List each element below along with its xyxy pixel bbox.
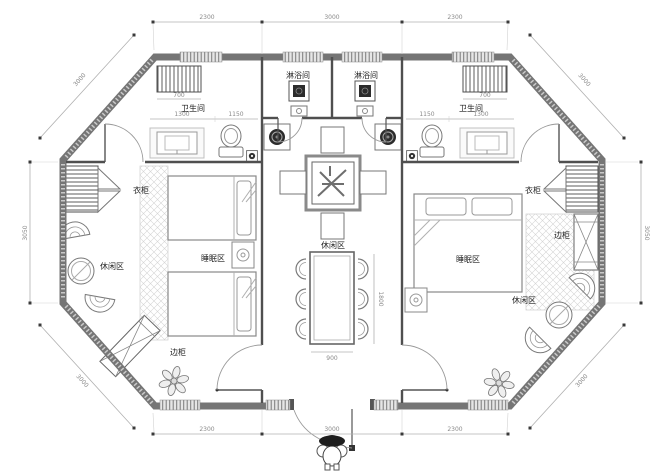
floor-plan: 2300 3000 2300 2300 3000 2300 3050 3050 … [0,0,651,473]
dim-diag-bl: 3000 [74,373,90,389]
basin-left [264,124,290,150]
wardrobe-left [66,166,120,212]
label-sleep-right: 睡眠区 [456,255,480,264]
dim-top-right: 2300 [447,14,462,21]
dim-bottom-right: 2300 [447,426,462,433]
dim-bottom-mid: 3000 [324,426,339,433]
bed-right [414,194,522,292]
dim-side-left: 3050 [22,225,29,240]
dim-diag-tl: 3000 [72,72,88,88]
tea-table [280,127,386,239]
dim-radiator-right: 700 [479,92,491,99]
dim-radiator-left: 700 [173,92,185,99]
floor-plan-drawing: 2300 3000 2300 2300 3000 2300 3050 3050 … [0,0,651,473]
shower-right-fixtures [355,81,375,116]
person-figure [317,435,347,470]
stool-right [360,171,386,194]
bed-left-2 [168,272,256,336]
label-shower-left: 淋浴间 [286,70,310,80]
dim-diag-br: 3000 [574,373,590,389]
plant-left [156,363,193,400]
label-wardrobe-left: 衣柜 [133,185,149,195]
side-cabinet-right [574,214,598,270]
dim-top-mid: 3000 [324,14,339,21]
nightstand-right [405,288,427,312]
label-wardrobe-right: 衣柜 [525,185,541,195]
stool-left [280,171,306,194]
label-cabinet-right: 边柜 [554,230,570,240]
label-lounge-left: 休闲区 [100,261,124,271]
label-sleep-left: 睡眠区 [201,254,225,263]
label-bathroom-left: 卫生间 [181,103,205,113]
dim-dining-h: 1800 [377,291,384,306]
dim-bottom-left: 2300 [199,426,214,433]
wardrobe-right [544,166,598,212]
label-shower-right: 淋浴间 [354,70,378,80]
dining-set [296,252,368,344]
dim-top-left: 2300 [199,14,214,21]
door-bathroom-right [521,124,559,162]
dim-side-right: 3050 [643,225,650,240]
radiator-right [463,66,507,92]
side-cabinet-left [100,315,160,376]
dim-diag-tr: 3000 [576,72,592,88]
dim-bath-left-b: 1150 [228,111,243,118]
door-bathroom-left [105,124,143,162]
label-bathroom-right: 卫生间 [459,103,483,113]
dim-bath-right-a: 1150 [419,111,434,118]
dim-dining-w: 900 [326,355,338,362]
stool-bottom [321,213,344,239]
plant-right [480,364,518,402]
door-bedroom-left [216,345,263,392]
door-bedroom-right [402,345,449,392]
radiator-left [157,66,201,92]
stool-top [321,127,344,153]
label-cabinet-left: 边柜 [170,347,186,357]
bed-left-1 [168,176,256,240]
label-lounge-center: 休闲区 [321,240,345,250]
nightstand-left [232,242,254,268]
shower-left-fixtures [289,81,309,116]
basin-right [375,124,401,150]
label-lounge-right: 休闲区 [512,295,536,305]
